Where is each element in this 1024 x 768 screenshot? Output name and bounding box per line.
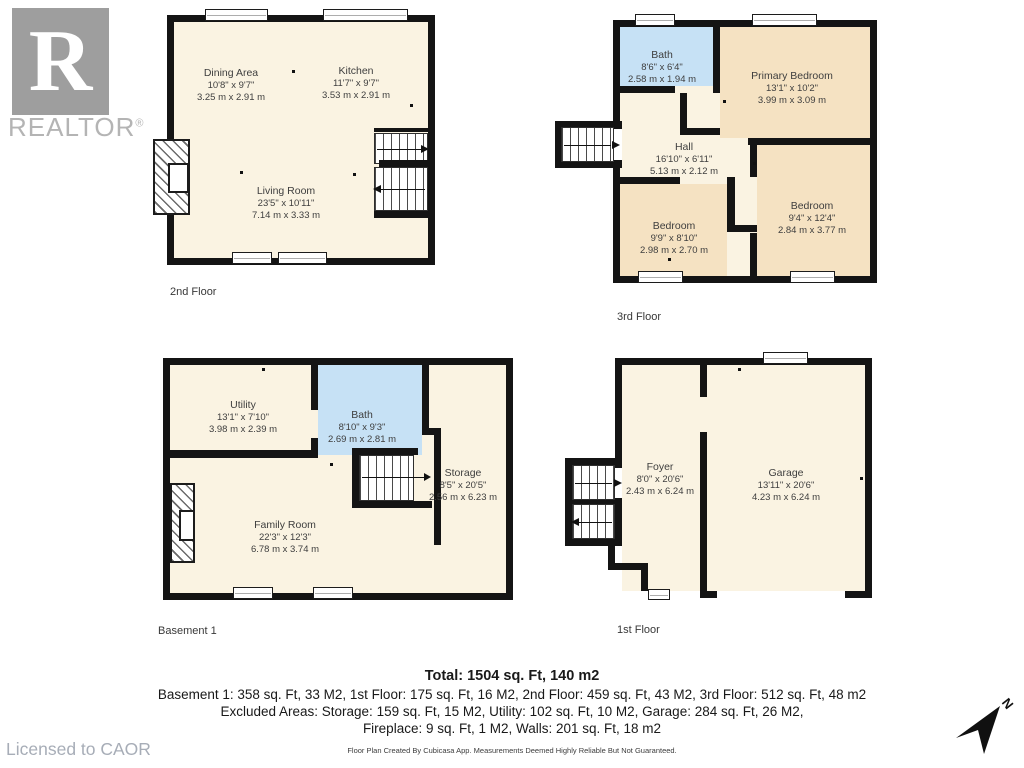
interior-wall	[422, 365, 429, 428]
room-name: Primary Bedroom	[751, 70, 833, 82]
north-arrow-icon: N	[948, 696, 1018, 762]
fireplace-insert	[168, 163, 189, 193]
room-size-metric: 2.43 m x 6.24 m	[626, 486, 694, 498]
staircase-down	[374, 167, 428, 211]
room-size-metric: 3.99 m x 3.09 m	[751, 95, 833, 107]
interior-wall	[680, 128, 720, 135]
room-size-metric: 5.13 m x 2.12 m	[650, 166, 718, 178]
room-name: Bath	[328, 409, 396, 421]
room-label-family-room: Family Room 22'3" x 12'3" 6.78 m x 3.74 …	[251, 519, 319, 555]
room-label-utility: Utility 13'1" x 7'10" 3.98 m x 2.39 m	[209, 399, 277, 435]
stair-arrow-icon	[571, 518, 579, 526]
interior-wall	[727, 177, 735, 228]
stair-direction-line	[377, 189, 425, 190]
room-name: Bedroom	[778, 200, 846, 212]
room-size-metric: 2.69 m x 2.81 m	[328, 434, 396, 446]
room-size-metric: 3.53 m x 2.91 m	[322, 90, 390, 102]
floor-caption-2nd-floor: 2nd Floor	[170, 286, 216, 298]
room-name: Foyer	[626, 461, 694, 473]
stair-arrow-icon	[612, 141, 620, 149]
room-size-imperial: 22'3" x 12'3"	[251, 532, 319, 544]
floor-areas-text: Basement 1: 358 sq. Ft, 33 M2, 1st Floor…	[0, 686, 1024, 703]
door-mark	[738, 368, 741, 371]
stair-arrow-icon	[421, 145, 429, 153]
room-label-bath: Bath 8'10" x 9'3" 2.69 m x 2.81 m	[328, 409, 396, 445]
realtor-logo-letter: R	[29, 12, 93, 112]
window	[648, 589, 670, 600]
interior-wall	[352, 501, 432, 508]
stair-direction-line	[575, 522, 612, 523]
room-label-bedroom: Bedroom 9'9" x 8'10" 2.98 m x 2.70 m	[640, 220, 708, 256]
room-name: Utility	[209, 399, 277, 411]
room-name: Bedroom	[640, 220, 708, 232]
door-mark	[410, 104, 413, 107]
door-mark	[753, 162, 756, 165]
window	[635, 14, 675, 26]
realtor-logo-wordmark: REALTOR®	[8, 112, 145, 143]
window	[763, 352, 808, 364]
interior-wall	[311, 438, 318, 458]
door-mark	[668, 258, 671, 261]
interior-wall	[700, 432, 707, 598]
room-name: Storage	[429, 467, 497, 479]
room-size-imperial: 11'7" x 9'7"	[322, 78, 390, 90]
stair-arrow-icon	[362, 477, 424, 478]
fireplace-insert	[179, 510, 195, 541]
door-mark	[292, 70, 295, 73]
room-size-imperial: 16'10" x 6'11"	[650, 154, 718, 166]
room-size-imperial: 8'10" x 9'3"	[328, 422, 396, 434]
floor-caption-3rd-floor: 3rd Floor	[617, 311, 661, 323]
door-mark	[330, 463, 333, 466]
room-size-imperial: 13'11" x 20'6"	[752, 480, 820, 492]
door-mark	[723, 100, 726, 103]
window	[323, 9, 408, 21]
excluded-areas-text: Excluded Areas: Storage: 159 sq. Ft, 15 …	[0, 703, 1024, 720]
window	[205, 9, 268, 21]
realtor-logo-icon: R	[12, 8, 109, 115]
interior-wall	[750, 145, 757, 177]
garage-door-opening	[717, 591, 845, 598]
room-name: Garage	[752, 467, 820, 479]
area-summary: Total: 1504 sq. Ft, 140 m2 Basement 1: 3…	[0, 667, 1024, 755]
room-size-metric: 3.25 m x 2.91 m	[197, 92, 265, 104]
window	[313, 587, 353, 599]
interior-wall	[750, 233, 757, 276]
floor-caption-1st-floor: 1st Floor	[617, 624, 660, 636]
room-size-metric: 2.56 m x 6.23 m	[429, 492, 497, 504]
registered-trademark: ®	[135, 117, 144, 129]
floor-plan-sheet: R REALTOR® Dining Area 10'8" x 9'7" 3.25…	[0, 0, 1024, 768]
license-text: Licensed to CAOR	[6, 739, 151, 760]
window	[638, 271, 683, 283]
staircase	[561, 127, 614, 162]
stair-direction-line	[564, 145, 611, 146]
room-name: Family Room	[251, 519, 319, 531]
stair-arrow-icon	[373, 185, 381, 193]
room-size-imperial: 23'5" x 10'11"	[252, 198, 320, 210]
room-name: Living Room	[252, 185, 320, 197]
room-name: Kitchen	[322, 65, 390, 77]
room-name: Bath	[628, 49, 696, 61]
room-name: Dining Area	[197, 67, 265, 79]
interior-wall	[620, 177, 680, 184]
interior-wall	[163, 450, 318, 458]
floor-caption-basement-1: Basement 1	[158, 625, 217, 637]
door-mark	[353, 173, 356, 176]
staircase	[359, 455, 414, 501]
realtor-logo-text: REALTOR	[8, 112, 135, 142]
interior-wall	[311, 365, 318, 410]
stair-arrow-icon	[614, 479, 622, 487]
interior-wall	[422, 428, 441, 435]
room-size-metric: 4.23 m x 6.24 m	[752, 492, 820, 504]
room-size-imperial: 8'6" x 6'4"	[628, 62, 696, 74]
room-size-metric: 2.84 m x 3.77 m	[778, 225, 846, 237]
interior-wall	[608, 563, 648, 570]
room-size-imperial: 13'1" x 7'10"	[209, 412, 277, 424]
door-opening	[670, 591, 700, 598]
staircase-down	[572, 504, 615, 539]
stair-direction-line	[377, 149, 425, 150]
fireplace	[153, 139, 190, 215]
window	[790, 271, 835, 283]
room-size-metric: 3.98 m x 2.39 m	[209, 424, 277, 436]
interior-wall	[352, 448, 359, 508]
window	[278, 252, 327, 264]
interior-wall	[374, 128, 428, 132]
room-size-imperial: 13'1" x 10'2"	[751, 83, 833, 95]
interior-wall	[374, 211, 435, 218]
room-label-living-room: Living Room 23'5" x 10'11" 7.14 m x 3.33…	[252, 185, 320, 221]
room-label-dining-area: Dining Area 10'8" x 9'7" 3.25 m x 2.91 m	[197, 67, 265, 103]
window	[232, 252, 272, 264]
wall-opening	[615, 591, 648, 598]
room-label-hall: Hall 16'10" x 6'11" 5.13 m x 2.12 m	[650, 141, 718, 177]
room-label-primary-bedroom: Primary Bedroom 13'1" x 10'2" 3.99 m x 3…	[751, 70, 833, 106]
room-size-metric: 2.58 m x 1.94 m	[628, 74, 696, 86]
stair-direction-line	[575, 483, 612, 484]
interior-wall	[379, 160, 435, 167]
room-size-imperial: 8'5" x 20'5"	[429, 480, 497, 492]
window	[752, 14, 817, 26]
interior-wall	[352, 448, 418, 455]
disclaimer-text: Floor Plan Created By Cubicasa App. Meas…	[0, 746, 1024, 755]
interior-wall	[748, 138, 870, 145]
door-mark	[262, 368, 265, 371]
room-label-garage: Garage 13'11" x 20'6" 4.23 m x 6.24 m	[752, 467, 820, 503]
door-mark	[860, 477, 863, 480]
total-area-text: Total: 1504 sq. Ft, 140 m2	[0, 667, 1024, 685]
window	[233, 587, 273, 599]
interior-wall	[620, 86, 675, 93]
room-size-metric: 2.98 m x 2.70 m	[640, 245, 708, 257]
interior-wall	[727, 225, 757, 232]
room-label-bedroom: Bedroom 9'4" x 12'4" 2.84 m x 3.77 m	[778, 200, 846, 236]
room-size-imperial: 8'0" x 20'6"	[626, 474, 694, 486]
interior-wall	[713, 27, 720, 93]
room-label-bath: Bath 8'6" x 6'4" 2.58 m x 1.94 m	[628, 49, 696, 85]
staircase-up	[572, 465, 615, 500]
room-size-imperial: 10'8" x 9'7"	[197, 80, 265, 92]
room-size-metric: 6.78 m x 3.74 m	[251, 544, 319, 556]
room-label-foyer: Foyer 8'0" x 20'6" 2.43 m x 6.24 m	[626, 461, 694, 497]
room-label-kitchen: Kitchen 11'7" x 9'7" 3.53 m x 2.91 m	[322, 65, 390, 101]
room-size-metric: 7.14 m x 3.33 m	[252, 210, 320, 222]
room-name: Hall	[650, 141, 718, 153]
excluded-areas-text-2: Fireplace: 9 sq. Ft, 1 M2, Walls: 201 sq…	[0, 720, 1024, 737]
room-size-imperial: 9'9" x 8'10"	[640, 233, 708, 245]
room-size-imperial: 9'4" x 12'4"	[778, 213, 846, 225]
room-label-storage: Storage 8'5" x 20'5" 2.56 m x 6.23 m	[429, 467, 497, 503]
fireplace	[170, 483, 195, 563]
interior-wall	[700, 365, 707, 397]
door-mark	[240, 171, 243, 174]
